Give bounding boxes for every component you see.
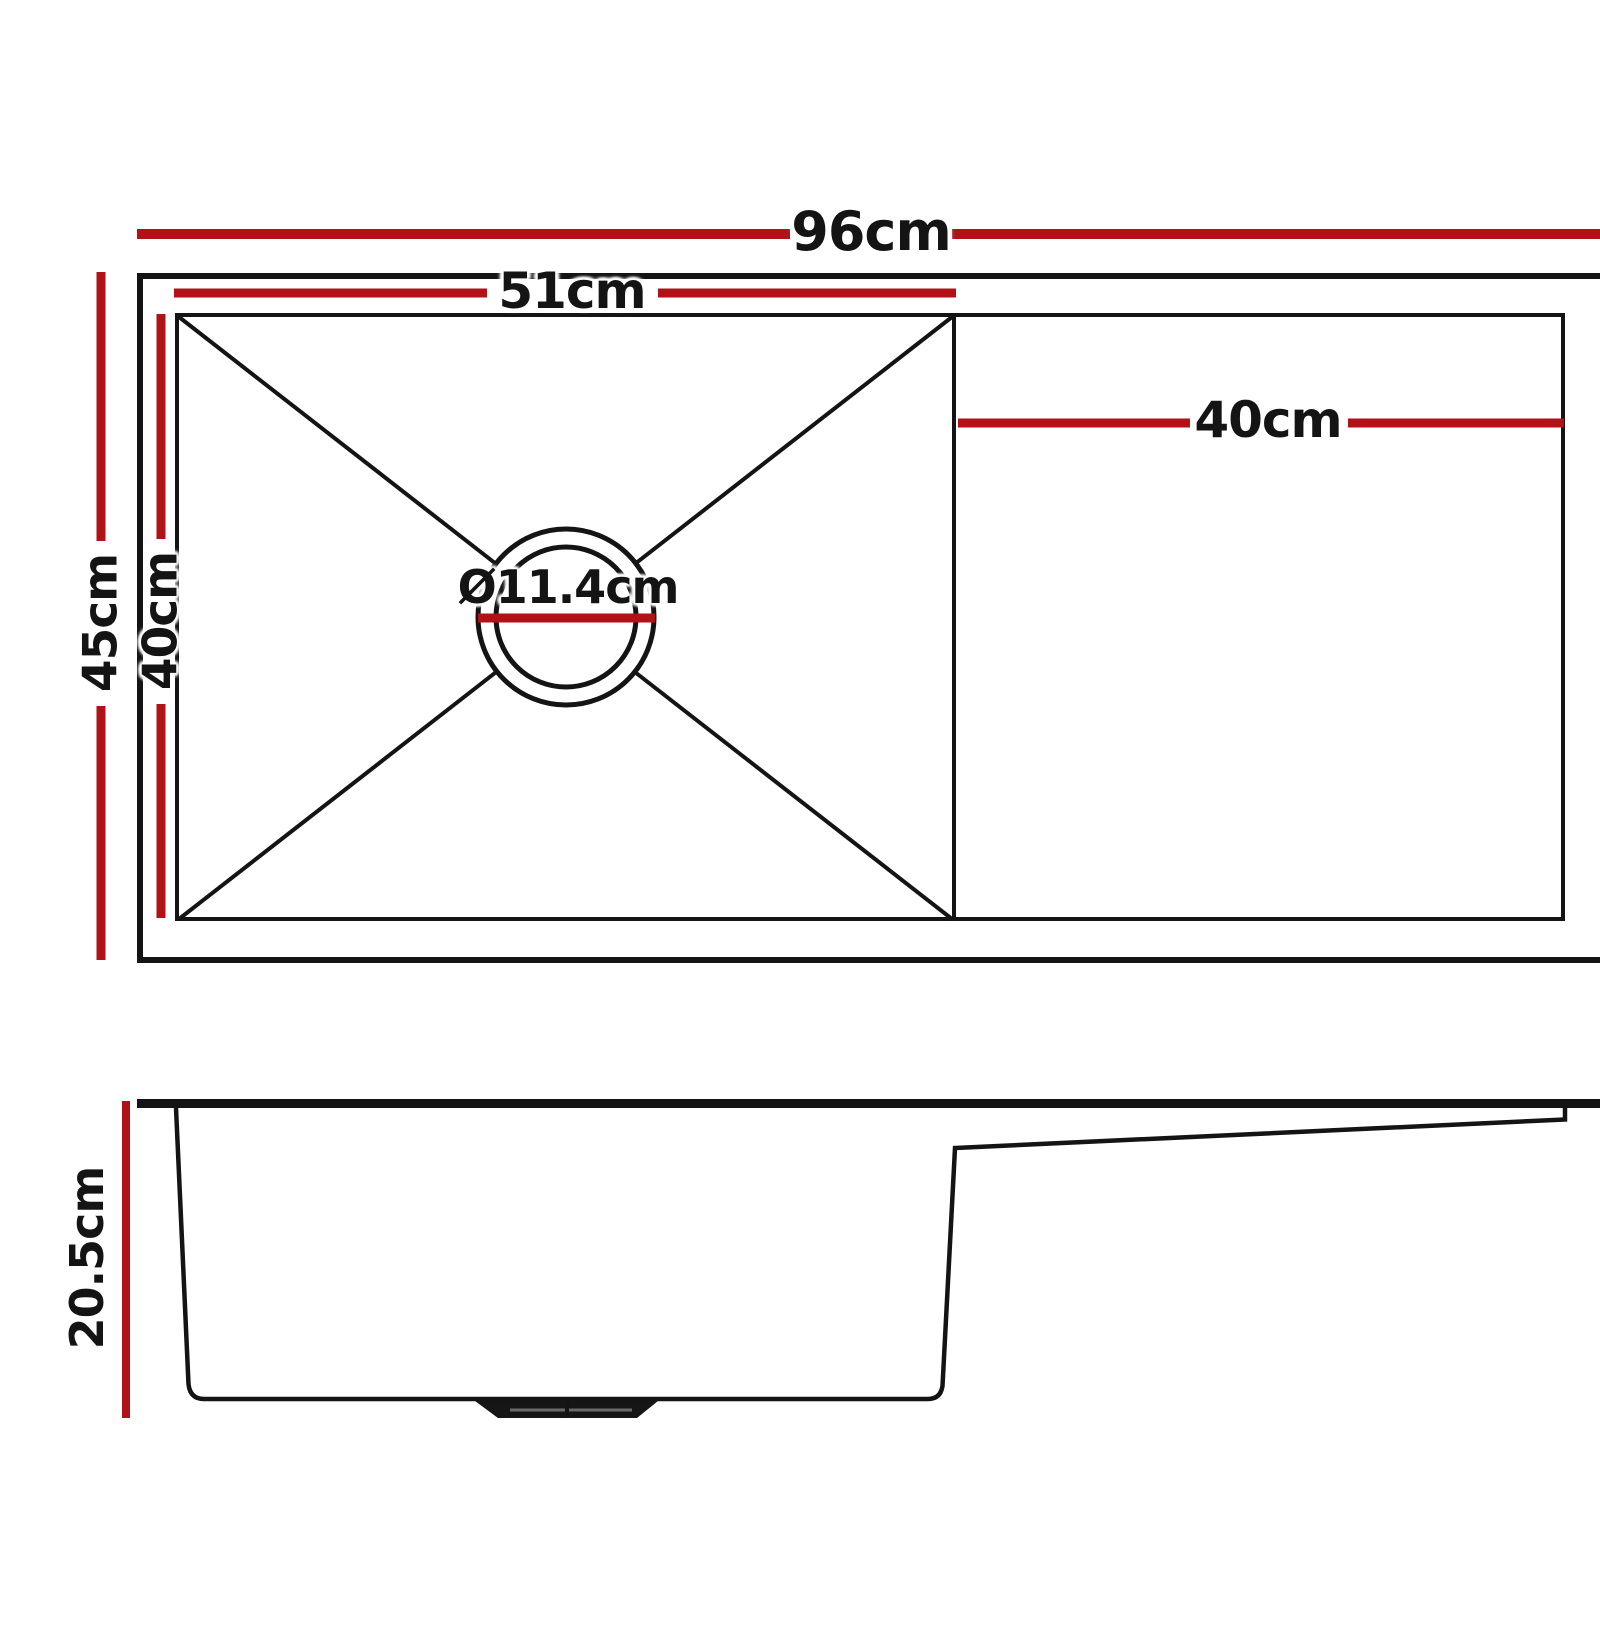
label-side-height: 20.5cm xyxy=(64,1167,110,1350)
dimension-lines xyxy=(101,234,1600,1418)
label-bowl-depth: 40cm xyxy=(138,552,185,690)
label-overall-depth: 45cm xyxy=(78,554,125,692)
label-overall-width: 96cm xyxy=(791,205,950,259)
label-drain-diameter: Ø11.4cm xyxy=(458,564,679,610)
side-view xyxy=(137,1104,1600,1419)
label-bowl-width: 51cm xyxy=(498,266,645,316)
sink-dimension-diagram: 96cm 51cm 40cm 45cm 40cm Ø11.4cm 20.5cm xyxy=(40,16,1600,1616)
sink-inner-rect xyxy=(177,315,1563,919)
side-view-bowl-profile xyxy=(176,1107,1565,1399)
label-drainer-width: 40cm xyxy=(1194,395,1341,445)
top-view xyxy=(140,276,1600,960)
